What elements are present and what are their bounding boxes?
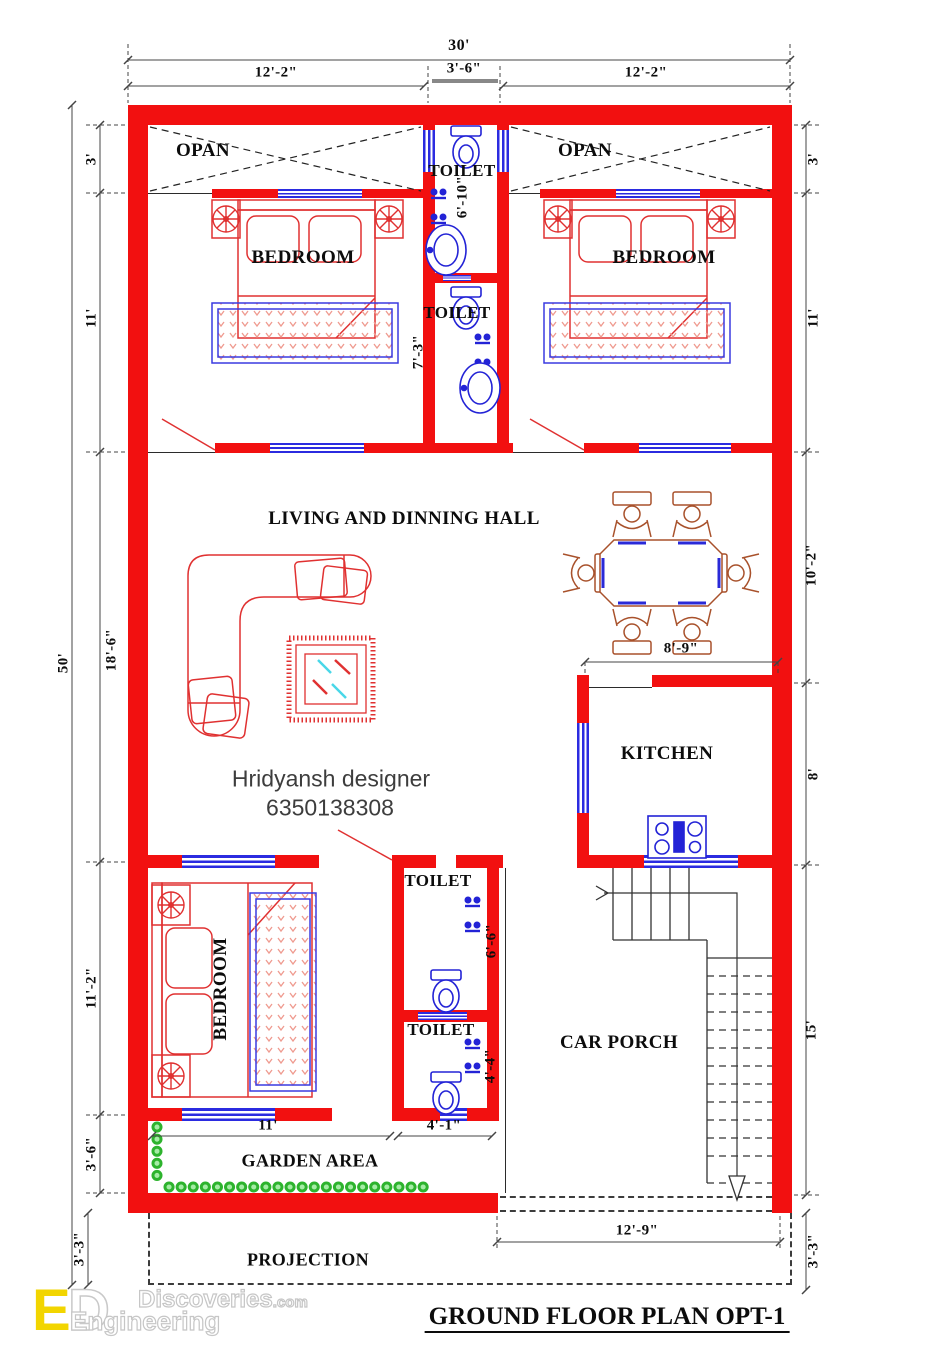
- dim-top-left: 12'-2": [255, 65, 297, 82]
- dim-left-projection: 3'-3": [72, 1232, 89, 1267]
- dim-right-opan: 3': [806, 153, 823, 165]
- designer-name: Hridyansh designer: [232, 766, 430, 793]
- sheet-title: GROUND FLOOR PLAN OPT-1: [425, 1303, 790, 1333]
- room-label-projection: PROJECTION: [247, 1250, 369, 1271]
- dining-set: [563, 492, 759, 654]
- designer-phone: 6350138308: [266, 795, 394, 822]
- room-label-car-porch: CAR PORCH: [560, 1032, 678, 1054]
- room-label-bedroom-left: BEDROOM: [251, 247, 354, 269]
- opan-cross-right: [511, 127, 770, 191]
- room-label-bedroom-right: BEDROOM: [612, 247, 715, 269]
- dim-top-right: 12'-2": [625, 65, 667, 82]
- stove: [648, 816, 706, 858]
- dim-right-porch: 15': [804, 1020, 821, 1040]
- toilet-fixtures-top: [426, 126, 481, 275]
- dim-left-bedroom: 11': [84, 308, 101, 328]
- room-label-bedroom-bottom: BEDROOM: [210, 937, 232, 1040]
- room-label-kitchen: KITCHEN: [621, 743, 714, 765]
- toilet-fixtures-lower: [431, 897, 480, 1114]
- sofa: [188, 555, 371, 739]
- dim-toilet-lower1: 6'-6": [484, 924, 501, 959]
- dim-garden-right: 4'-1": [427, 1118, 462, 1135]
- room-label-garden: GARDEN AREA: [242, 1151, 379, 1172]
- logo-letter-e: E: [32, 1282, 71, 1340]
- room-label-opan-left: OPAN: [176, 140, 230, 162]
- dim-kitchen-width: 8'-9": [664, 641, 699, 658]
- dim-right-projection: 3'-3": [806, 1234, 823, 1269]
- floor-plan-sheet: OPAN OPAN TOILET TOILET BEDROOM BEDROOM …: [0, 0, 934, 1350]
- dim-right-kitchen: 8': [806, 768, 823, 780]
- dim-projection-width: 12'-9": [616, 1223, 658, 1240]
- dim-left-opan: 3': [84, 153, 101, 165]
- room-label-opan-right: OPAN: [558, 140, 612, 162]
- logo-word-engineering: Engineering: [70, 1306, 220, 1337]
- logo-word1-suffix: .com: [273, 1294, 308, 1311]
- dim-left-total: 50': [56, 653, 73, 673]
- dim-left-bedroom2: 11'-2": [84, 967, 101, 1009]
- dim-garden-left: 11': [258, 1118, 278, 1135]
- dim-left-living: 18'-6": [104, 629, 121, 671]
- center-table: [289, 638, 373, 720]
- dim-left-garden: 3'-6": [84, 1137, 101, 1172]
- room-label-living-hall: LIVING AND DINNING HALL: [268, 508, 540, 530]
- dim-right-bedroom: 11': [806, 308, 823, 328]
- dim-top-total: 30': [448, 37, 470, 55]
- dim-top-mid: 3'-6": [447, 61, 482, 78]
- room-label-toilet-lower2: TOILET: [407, 1020, 474, 1040]
- bed-right: [544, 200, 735, 363]
- bed-left: [212, 200, 403, 363]
- dim-toilet-top: 6'-10": [455, 176, 472, 218]
- room-label-toilet-lower1: TOILET: [404, 871, 471, 891]
- room-label-toilet-mid: TOILET: [423, 303, 490, 323]
- dim-toilet-mid: 7'-3": [411, 335, 428, 370]
- bed-bottom: [152, 883, 316, 1097]
- dim-toilet-lower2: 4'-4": [483, 1049, 500, 1084]
- dim-right-dining: 10'-2": [804, 544, 821, 586]
